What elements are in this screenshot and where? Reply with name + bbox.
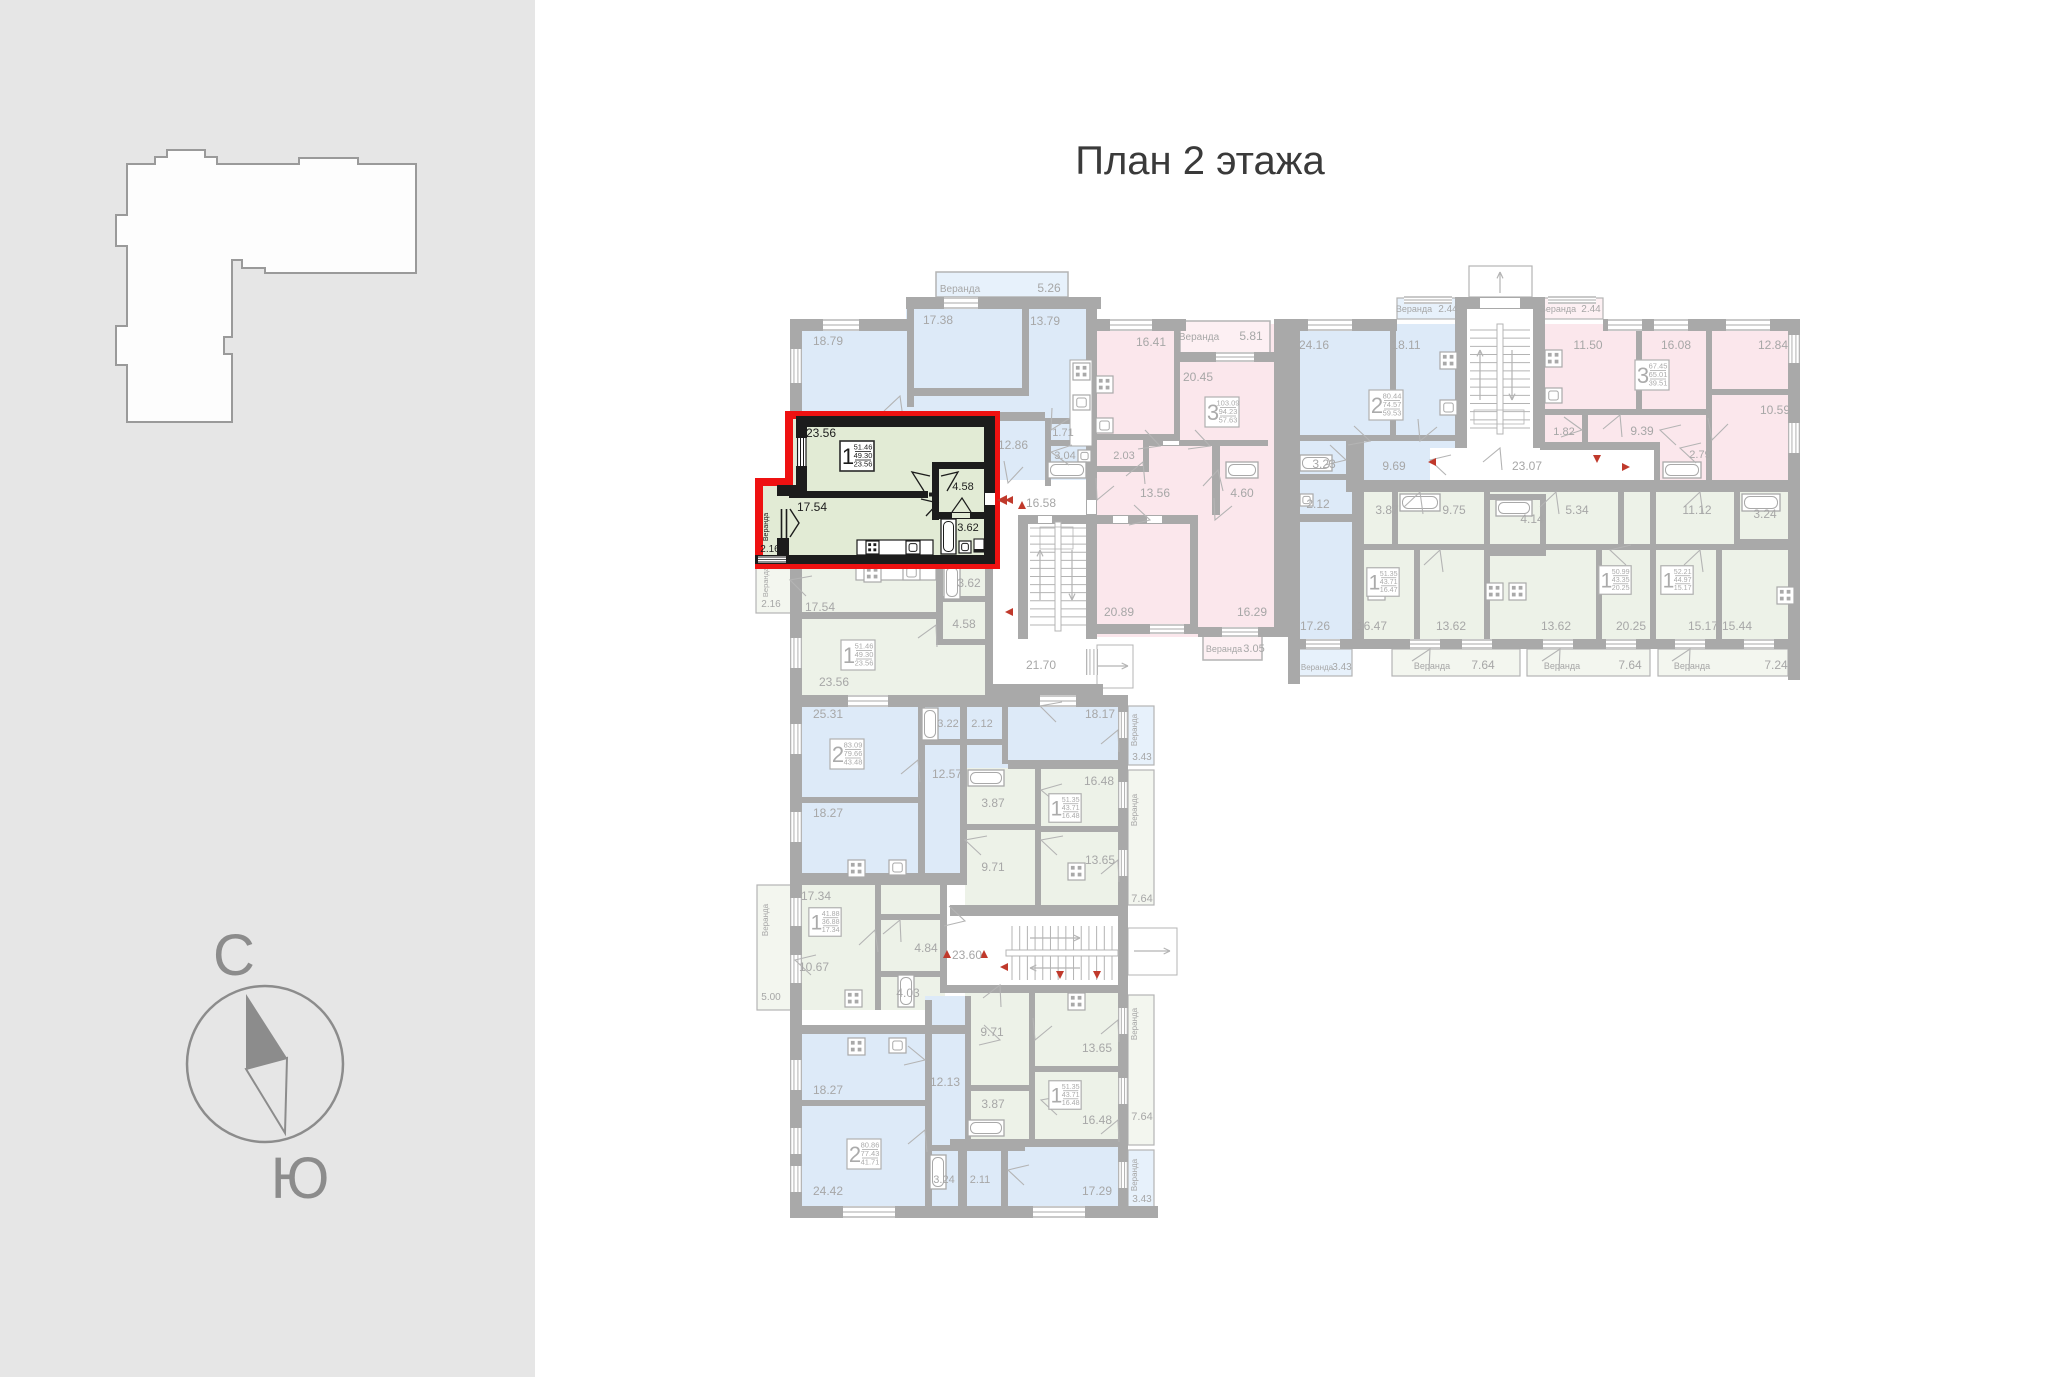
svg-text:24.42: 24.42 [813, 1184, 843, 1198]
svg-text:3.62: 3.62 [957, 522, 978, 534]
svg-text:39.51: 39.51 [1649, 379, 1668, 388]
svg-text:2.12: 2.12 [971, 718, 992, 730]
svg-text:20.89: 20.89 [1104, 605, 1134, 619]
svg-text:43.71: 43.71 [1062, 804, 1080, 812]
svg-text:15.17: 15.17 [1674, 584, 1692, 592]
svg-text:Веранда: Веранда [1544, 661, 1580, 671]
svg-text:12.84: 12.84 [1758, 338, 1788, 352]
svg-text:Веранда: Веранда [1301, 663, 1334, 672]
svg-text:3: 3 [1637, 363, 1649, 388]
svg-text:5.00: 5.00 [761, 992, 781, 1003]
svg-text:Веранда: Веранда [1674, 661, 1710, 671]
svg-text:16.48: 16.48 [1084, 774, 1114, 788]
svg-text:1: 1 [1663, 570, 1675, 593]
svg-text:24.16: 24.16 [1299, 338, 1329, 352]
svg-text:23.07: 23.07 [1512, 459, 1542, 473]
svg-text:3.24: 3.24 [1753, 507, 1777, 521]
svg-text:17.54: 17.54 [805, 600, 835, 614]
svg-text:18.17: 18.17 [1085, 707, 1115, 721]
svg-text:2: 2 [1371, 393, 1383, 418]
svg-text:3.23: 3.23 [1312, 457, 1336, 471]
svg-text:1: 1 [843, 643, 855, 668]
svg-text:3.87: 3.87 [981, 796, 1005, 810]
svg-text:9.71: 9.71 [981, 860, 1005, 874]
svg-text:4.58: 4.58 [952, 617, 976, 631]
svg-text:15.17: 15.17 [1688, 619, 1718, 633]
svg-text:Веранда: Веранда [940, 284, 981, 295]
svg-text:Ю: Ю [271, 1146, 330, 1211]
svg-text:3.04: 3.04 [1054, 450, 1075, 462]
svg-text:20.25: 20.25 [1612, 584, 1630, 592]
svg-text:10.59: 10.59 [1760, 403, 1790, 417]
svg-text:43.48: 43.48 [844, 758, 863, 767]
svg-text:2.11: 2.11 [970, 1174, 991, 1186]
svg-text:1: 1 [842, 444, 854, 469]
svg-text:2.16: 2.16 [761, 599, 781, 610]
svg-text:3.87: 3.87 [1375, 503, 1399, 517]
svg-text:23.56: 23.56 [854, 460, 873, 469]
svg-text:16.08: 16.08 [1661, 338, 1691, 352]
svg-text:Веранда: Веранда [1179, 332, 1220, 343]
svg-text:Веранда: Веранда [1540, 304, 1576, 314]
svg-text:1: 1 [1601, 570, 1613, 593]
svg-text:7.64: 7.64 [1618, 658, 1642, 672]
svg-text:13.62: 13.62 [1436, 619, 1466, 633]
svg-text:20.25: 20.25 [1616, 619, 1646, 633]
svg-text:12.86: 12.86 [998, 438, 1028, 452]
svg-text:Веранда: Веранда [1130, 793, 1139, 826]
svg-text:3.43: 3.43 [1332, 662, 1352, 673]
svg-text:16.47: 16.47 [1357, 619, 1387, 633]
svg-text:2.12: 2.12 [1306, 497, 1330, 511]
svg-text:2.79: 2.79 [1689, 449, 1710, 461]
svg-text:50.99: 50.99 [1612, 568, 1630, 576]
svg-text:59.53: 59.53 [1383, 409, 1402, 418]
svg-text:1: 1 [811, 912, 823, 935]
svg-text:1: 1 [1051, 1085, 1063, 1108]
svg-text:Веранда: Веранда [1396, 304, 1432, 314]
svg-text:1: 1 [1051, 798, 1063, 821]
svg-text:51.35: 51.35 [1062, 796, 1080, 804]
svg-text:2: 2 [849, 1142, 861, 1167]
svg-text:17.38: 17.38 [923, 313, 953, 327]
svg-text:23.56: 23.56 [806, 426, 836, 440]
svg-text:Веранда: Веранда [1206, 644, 1242, 654]
svg-text:Веранда: Веранда [761, 903, 770, 936]
svg-text:7.64: 7.64 [1471, 658, 1495, 672]
svg-text:9.71: 9.71 [980, 1025, 1004, 1039]
svg-text:7.64: 7.64 [1131, 1111, 1152, 1123]
svg-text:17.54: 17.54 [797, 500, 827, 514]
svg-text:2.16: 2.16 [760, 544, 780, 555]
svg-text:21.70: 21.70 [1026, 658, 1056, 672]
svg-text:Веранда: Веранда [1130, 1158, 1139, 1191]
svg-text:5.26: 5.26 [1037, 281, 1061, 295]
svg-text:36.88: 36.88 [822, 918, 840, 926]
svg-text:17.26: 17.26 [1300, 619, 1330, 633]
svg-text:16.48: 16.48 [1062, 812, 1080, 820]
svg-text:4.03: 4.03 [896, 986, 920, 1000]
svg-text:Веранда: Веранда [763, 513, 770, 541]
svg-text:Веранда: Веранда [1414, 661, 1450, 671]
svg-text:План 2 этажа: План 2 этажа [1075, 139, 1325, 183]
svg-text:16.47: 16.47 [1380, 586, 1398, 594]
svg-text:Веранда: Веранда [1130, 713, 1139, 746]
svg-text:16.29: 16.29 [1237, 605, 1267, 619]
svg-text:9.69: 9.69 [1382, 459, 1406, 473]
svg-text:3.05: 3.05 [1243, 643, 1264, 655]
svg-text:4.60: 4.60 [1230, 486, 1254, 500]
svg-text:3.43: 3.43 [1132, 752, 1152, 763]
svg-text:3.62: 3.62 [957, 576, 981, 590]
svg-text:52.21: 52.21 [1674, 568, 1692, 576]
svg-text:17.34: 17.34 [822, 926, 840, 934]
svg-text:43.35: 43.35 [1612, 576, 1630, 584]
svg-text:18.27: 18.27 [813, 806, 843, 820]
svg-text:16.41: 16.41 [1136, 335, 1166, 349]
svg-text:43.71: 43.71 [1062, 1091, 1080, 1099]
svg-text:3.24: 3.24 [933, 1174, 954, 1186]
svg-text:2.44: 2.44 [1581, 304, 1601, 315]
svg-text:16.58: 16.58 [1026, 496, 1056, 510]
svg-text:16.48: 16.48 [1062, 1099, 1080, 1107]
svg-text:44.97: 44.97 [1674, 576, 1692, 584]
svg-text:25.31: 25.31 [813, 707, 843, 721]
svg-text:13.62: 13.62 [1541, 619, 1571, 633]
svg-text:12.13: 12.13 [930, 1075, 960, 1089]
svg-text:2.44: 2.44 [1438, 304, 1458, 315]
svg-text:1: 1 [1369, 572, 1381, 595]
svg-text:1.71: 1.71 [1052, 427, 1073, 439]
svg-text:12.57: 12.57 [932, 767, 962, 781]
svg-text:Веранда: Веранда [1130, 1007, 1139, 1040]
svg-text:17.29: 17.29 [1082, 1184, 1112, 1198]
svg-text:20.45: 20.45 [1183, 370, 1213, 384]
svg-text:13.79: 13.79 [1030, 314, 1060, 328]
svg-text:13.65: 13.65 [1085, 853, 1115, 867]
svg-text:11.12: 11.12 [1682, 503, 1711, 517]
svg-text:16.48: 16.48 [1082, 1113, 1112, 1127]
svg-text:13.56: 13.56 [1140, 486, 1170, 500]
svg-text:17.34: 17.34 [801, 889, 831, 903]
svg-text:18.79: 18.79 [813, 334, 843, 348]
svg-text:15.44: 15.44 [1722, 619, 1752, 633]
svg-text:41.71: 41.71 [861, 1158, 880, 1167]
svg-text:2: 2 [832, 742, 844, 767]
svg-text:18.11: 18.11 [1391, 338, 1420, 352]
svg-text:11.50: 11.50 [1573, 338, 1602, 352]
svg-text:13.65: 13.65 [1082, 1041, 1112, 1055]
svg-text:Веранда: Веранда [761, 566, 770, 597]
svg-text:4.58: 4.58 [952, 481, 973, 493]
svg-text:9.75: 9.75 [1442, 503, 1466, 517]
svg-text:23.60: 23.60 [952, 948, 982, 962]
svg-text:23.56: 23.56 [855, 659, 874, 668]
svg-text:4.14: 4.14 [1520, 512, 1544, 526]
svg-text:41.88: 41.88 [822, 910, 840, 918]
svg-text:5.81: 5.81 [1239, 329, 1263, 343]
svg-text:57.63: 57.63 [1219, 416, 1238, 425]
svg-text:7.64: 7.64 [1131, 893, 1152, 905]
svg-text:43.71: 43.71 [1380, 578, 1398, 586]
svg-text:2.03: 2.03 [1113, 450, 1134, 462]
svg-text:51.35: 51.35 [1062, 1083, 1080, 1091]
svg-text:5.34: 5.34 [1565, 503, 1589, 517]
svg-text:23.56: 23.56 [819, 675, 849, 689]
svg-text:С: С [213, 923, 255, 988]
svg-text:51.35: 51.35 [1380, 570, 1398, 578]
svg-text:4.84: 4.84 [914, 941, 938, 955]
svg-text:9.39: 9.39 [1630, 424, 1654, 438]
svg-text:7.24: 7.24 [1764, 658, 1788, 672]
svg-text:3.22: 3.22 [937, 718, 958, 730]
svg-text:18.27: 18.27 [813, 1083, 843, 1097]
svg-text:3.87: 3.87 [981, 1097, 1005, 1111]
svg-text:1.82: 1.82 [1553, 426, 1574, 438]
svg-text:3.43: 3.43 [1132, 1194, 1152, 1205]
svg-text:10.67: 10.67 [799, 960, 829, 974]
